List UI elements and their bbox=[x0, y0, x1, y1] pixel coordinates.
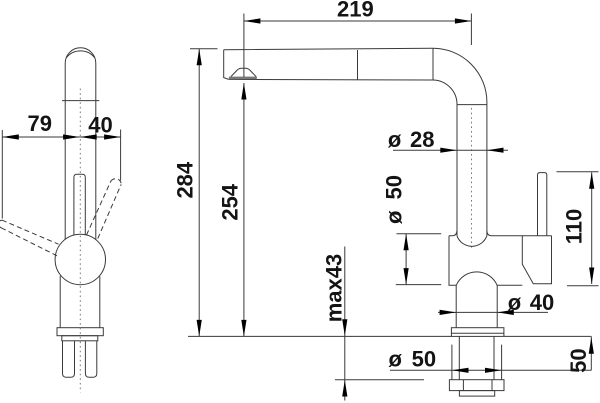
svg-text:50: 50 bbox=[566, 348, 591, 372]
svg-text:79: 79 bbox=[27, 111, 51, 136]
svg-text:ø 50: ø 50 bbox=[381, 175, 406, 224]
svg-text:ø 40: ø 40 bbox=[508, 290, 555, 315]
svg-text:40: 40 bbox=[88, 112, 112, 137]
svg-text:ø 50: ø 50 bbox=[389, 346, 437, 371]
svg-text:284: 284 bbox=[173, 161, 198, 198]
svg-text:110: 110 bbox=[562, 209, 587, 245]
svg-text:219: 219 bbox=[337, 0, 374, 22]
svg-text:254: 254 bbox=[217, 183, 242, 220]
svg-text:max43: max43 bbox=[321, 254, 346, 323]
svg-text:ø 28: ø 28 bbox=[388, 127, 435, 152]
